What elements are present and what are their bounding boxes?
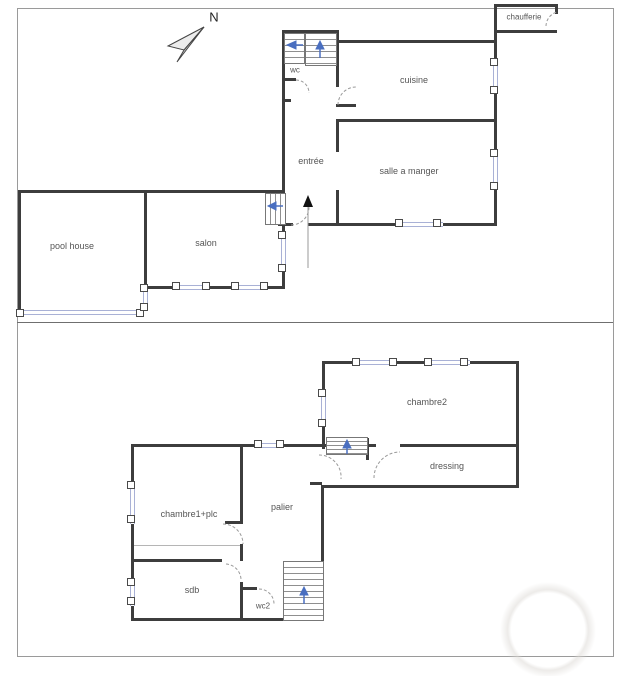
north-label: N — [209, 10, 218, 25]
room-label-wc2: wc2 — [256, 602, 270, 611]
stairs-upper-arrival — [326, 437, 368, 455]
window-endcap — [318, 389, 326, 397]
window-endcap — [140, 303, 148, 311]
window-endcap — [490, 182, 498, 190]
wall — [240, 544, 243, 561]
wall — [443, 223, 497, 226]
window-endcap — [490, 86, 498, 94]
room-label-entree: entrée — [298, 156, 324, 166]
window-endcap — [231, 282, 239, 290]
wall — [18, 190, 285, 193]
room-label-cuisine: cuisine — [400, 75, 428, 85]
window-endcap — [172, 282, 180, 290]
wall — [282, 78, 296, 81]
room-label-salon: salon — [195, 238, 217, 248]
window-endcap — [318, 419, 326, 427]
window-endcap — [424, 358, 432, 366]
room-label-sdb: sdb — [185, 585, 200, 595]
floor-divider-line — [17, 322, 613, 323]
drawing-frame — [17, 8, 614, 657]
room-label-chaufferie: chaufferie — [507, 13, 542, 22]
wall — [494, 4, 558, 7]
room-label-salle-a-manger: salle a manger — [379, 166, 438, 176]
wall — [368, 444, 376, 447]
wall — [322, 361, 325, 392]
window-endcap — [433, 219, 441, 227]
window-endcap — [254, 440, 262, 448]
window-endcap — [278, 264, 286, 272]
window-endcap — [127, 578, 135, 586]
wall — [282, 272, 285, 289]
room-label-chambre1-plc: chambre1+plc — [161, 509, 218, 519]
window-endcap — [127, 597, 135, 605]
window-endcap — [16, 309, 24, 317]
window-endcap — [140, 284, 148, 292]
wall — [131, 444, 134, 485]
wall — [242, 587, 257, 590]
wall — [494, 190, 497, 226]
window-endcap — [389, 358, 397, 366]
wall — [470, 361, 519, 364]
wall — [322, 361, 355, 364]
wall — [131, 559, 222, 562]
watermark — [498, 580, 598, 676]
window-endcap — [127, 481, 135, 489]
room-label-wc: wc — [290, 66, 300, 75]
window-endcap — [460, 358, 468, 366]
wall — [400, 444, 516, 447]
room-label-dressing: dressing — [430, 461, 464, 471]
wall — [494, 30, 557, 33]
window-endcap — [260, 282, 268, 290]
wall — [336, 190, 339, 224]
wall — [334, 40, 497, 43]
window-endcap — [395, 219, 403, 227]
window-endcap — [202, 282, 210, 290]
window-endcap — [490, 149, 498, 157]
wall — [555, 4, 558, 14]
wall — [144, 190, 147, 288]
stairs-main-right-flight — [305, 33, 337, 66]
wall — [282, 99, 291, 102]
window-endcap — [276, 440, 284, 448]
wall — [336, 104, 356, 107]
wall — [225, 521, 242, 524]
wall — [131, 444, 258, 447]
room-label-palier: palier — [271, 502, 293, 512]
wall — [494, 4, 497, 61]
wall — [280, 444, 326, 447]
wall — [18, 190, 21, 314]
floor-plan-page: chaufferie wc cuisine entrée salle a man… — [0, 0, 640, 676]
window — [20, 310, 141, 315]
wall — [131, 524, 134, 582]
stairs-salon-flight — [265, 193, 286, 225]
stairs-upper-flight — [283, 561, 324, 621]
wall — [336, 119, 497, 122]
stairs-main-left-flight — [284, 33, 305, 64]
wall — [321, 485, 519, 488]
room-label-pool-house: pool house — [50, 241, 94, 251]
window-endcap — [278, 231, 286, 239]
wall — [308, 223, 399, 226]
window-endcap — [127, 515, 135, 523]
window-endcap — [352, 358, 360, 366]
wall — [240, 444, 243, 524]
wall — [516, 361, 519, 488]
room-label-chambre2: chambre2 — [407, 397, 447, 407]
window-endcap — [490, 58, 498, 66]
closet-line — [134, 545, 240, 546]
wall — [336, 122, 339, 152]
wall — [310, 482, 322, 485]
wall — [494, 93, 497, 152]
